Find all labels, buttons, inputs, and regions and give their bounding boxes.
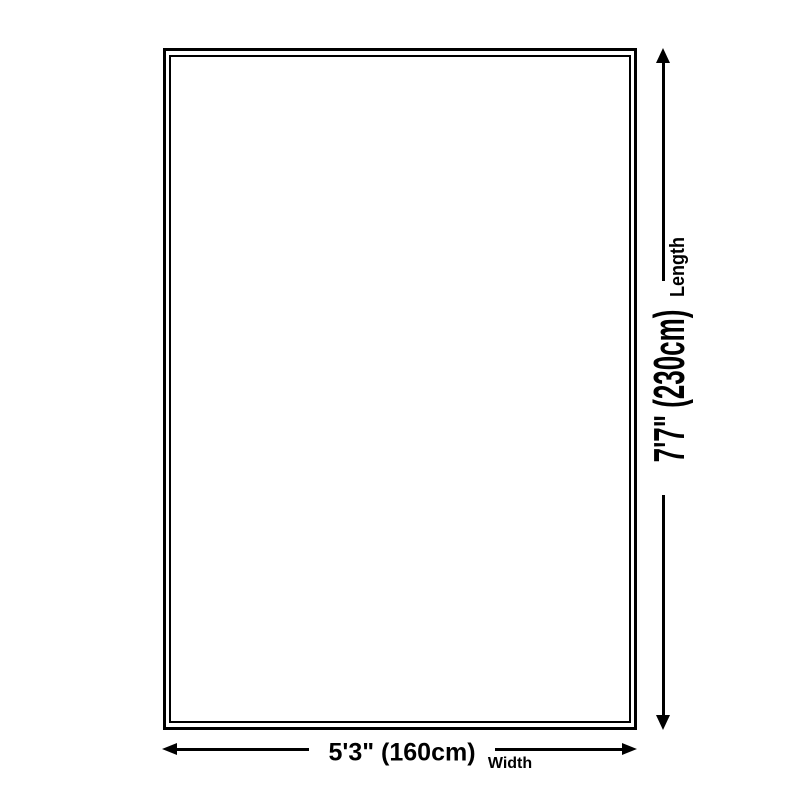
width-dimension-line-right [495,748,624,751]
arrow-down-icon [656,715,670,730]
length-dimension-line-top [662,60,665,281]
rug-size-diagram: Length 7'7" (230cm) 5'3" (160cm) Width [0,0,800,800]
rug-outline-outer [163,48,637,730]
rug-outline-inner [169,55,631,723]
width-dimension-line-left [175,748,309,751]
width-axis-label: Width [488,756,532,772]
length-value: 7'7" (230cm) [648,310,692,463]
arrow-right-icon [622,743,637,755]
width-value: 5'3" (160cm) [328,741,475,766]
length-axis-label: Length [668,237,688,297]
length-dimension-line-bottom [662,495,665,718]
